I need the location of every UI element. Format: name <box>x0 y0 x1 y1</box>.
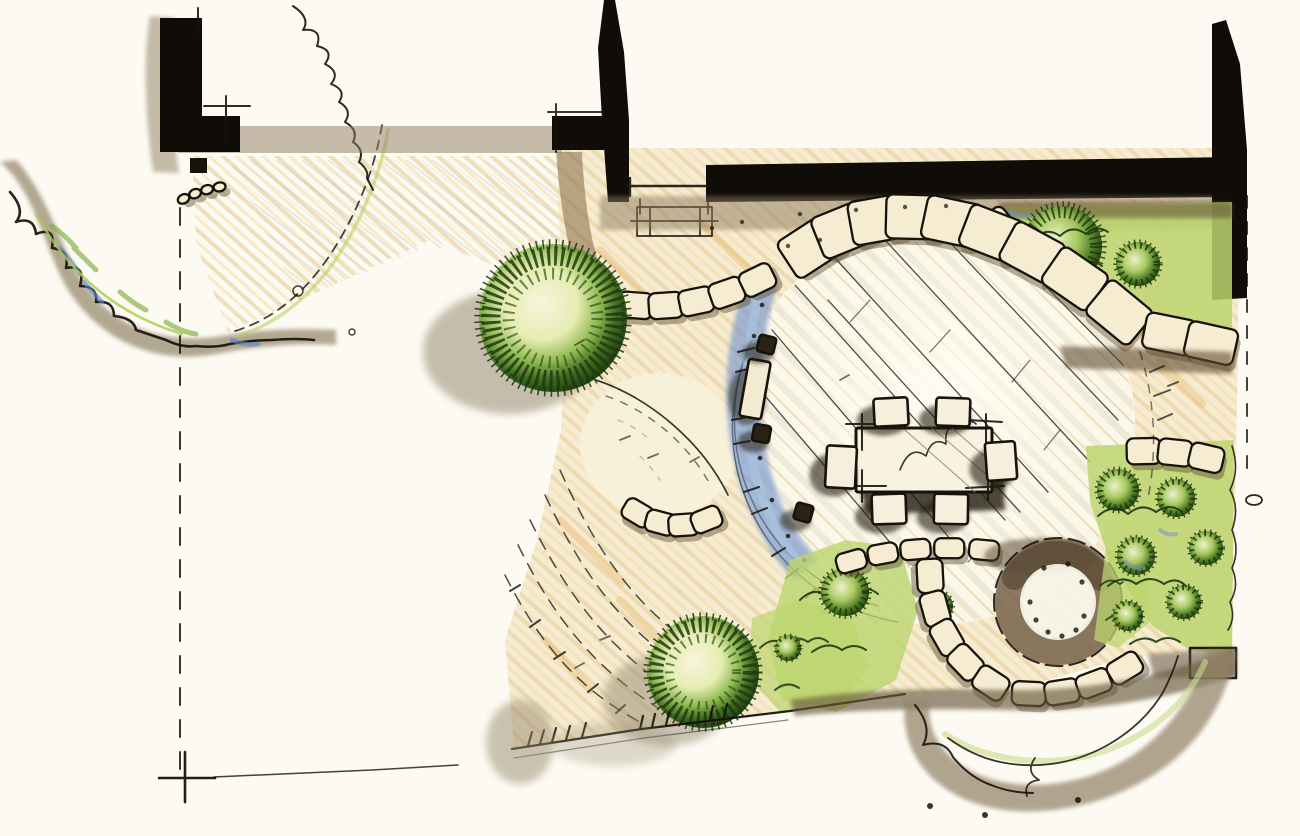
bed-northeast-wall-shadow <box>1000 202 1232 218</box>
garden-plan-canvas <box>0 0 1300 836</box>
west-wall-pier-square <box>190 158 207 173</box>
plan-scene-layer <box>0 0 1300 836</box>
southwest-corner-wash-blob <box>486 700 554 784</box>
dining-table <box>856 428 992 492</box>
garden-plan-drawing <box>0 0 1300 836</box>
south-path-wash-blob <box>552 722 676 766</box>
gate-left-wall-return <box>552 116 604 150</box>
small-lawn-circle <box>580 373 740 517</box>
